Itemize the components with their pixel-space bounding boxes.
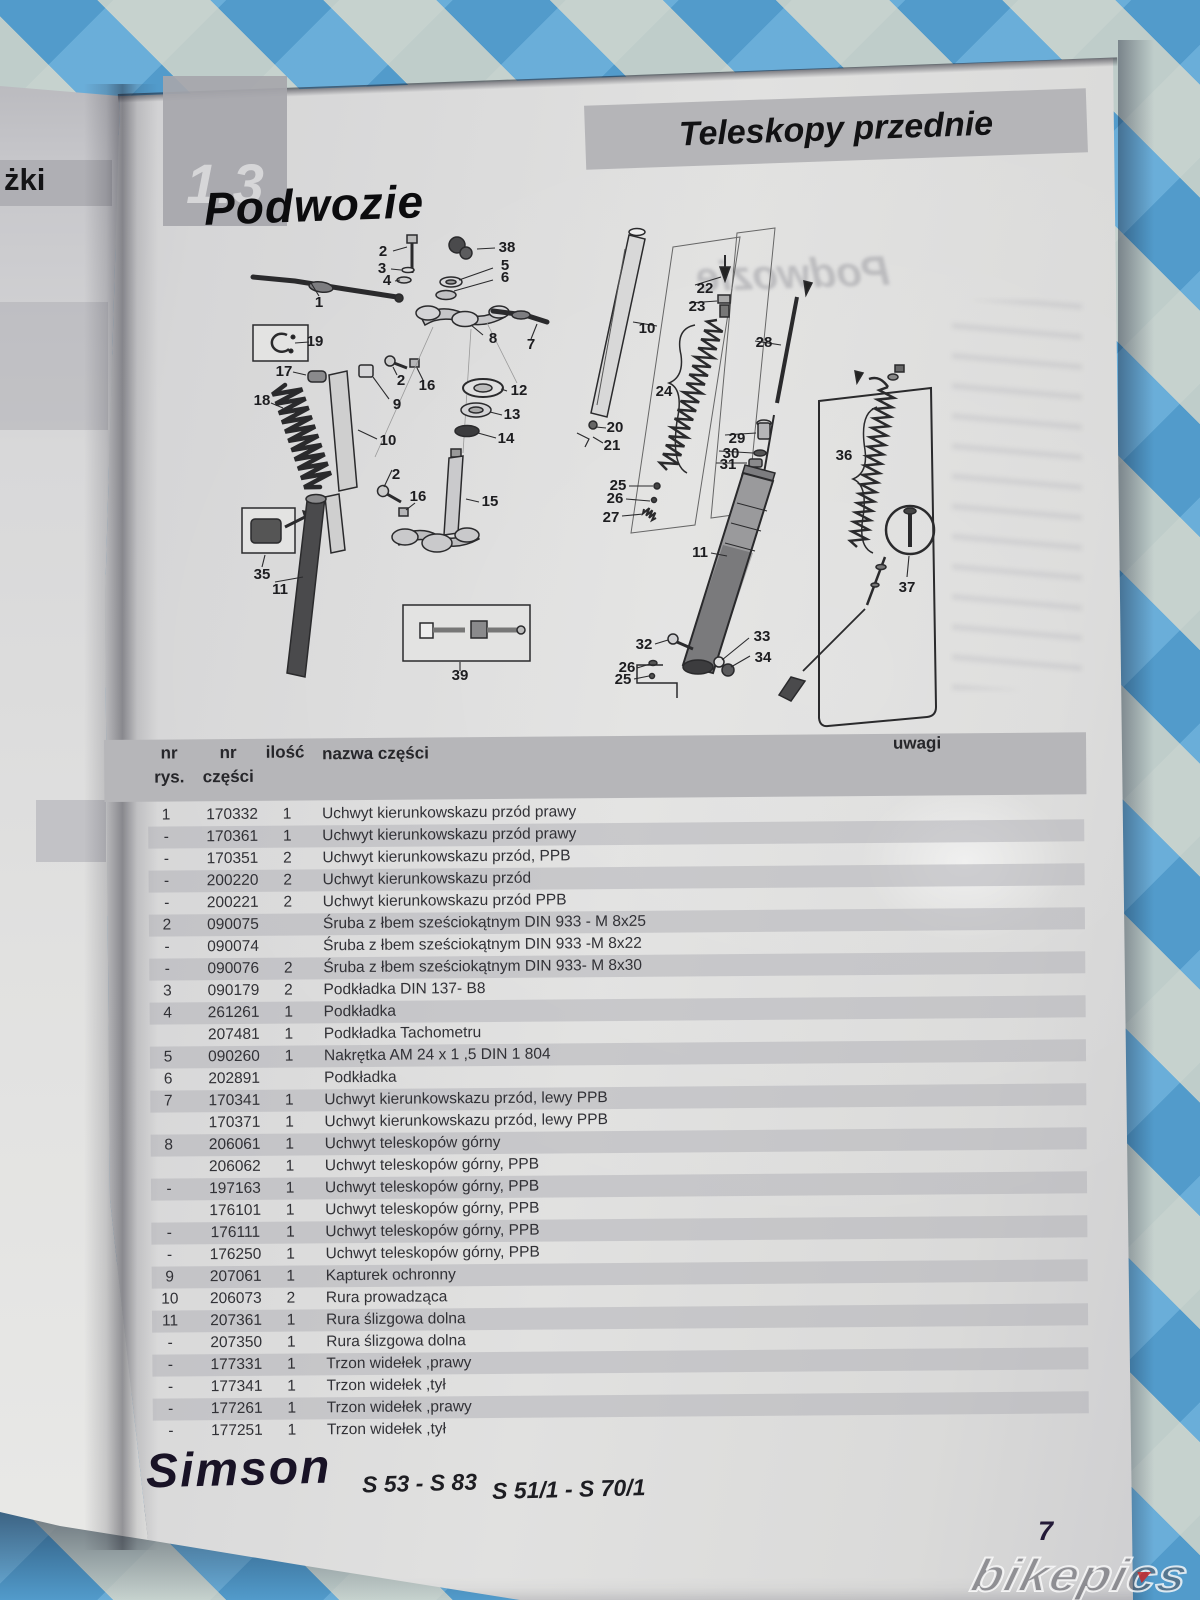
cell-ilosc: 1 (274, 1397, 310, 1419)
diagram-callout-12: 12 (511, 382, 528, 399)
cell-nr-rys: - (142, 1332, 198, 1354)
table-header: nr rys. nr części ilość nazwa części uwa… (104, 732, 1086, 802)
cell-nr-czesci: 177261 (201, 1398, 273, 1421)
cell-nr-czesci: 177341 (200, 1376, 272, 1399)
cell-nr-czesci: 200221 (197, 892, 269, 915)
cell-nazwa-czesci: Podkładka (324, 1001, 397, 1024)
cell-nazwa-czesci: Uchwyt teleskopów górny, PPB (325, 1242, 539, 1266)
cell-nr-rys: - (141, 1178, 197, 1200)
cell-nr-czesci: 090260 (198, 1046, 270, 1069)
cell-nr-czesci: 200220 (197, 870, 269, 893)
col-header-uwagi: uwagi (872, 733, 962, 754)
cell-ilosc: 2 (269, 847, 305, 869)
cell-nazwa-czesci: Uchwyt teleskopów górny, PPB (325, 1176, 539, 1200)
diagram-callout-10: 10 (639, 320, 656, 337)
cell-nr-rys: - (138, 848, 194, 870)
cell-nr-rys: 9 (142, 1266, 198, 1288)
cell-nazwa-czesci: Uchwyt kierunkowskazu przód PPB (323, 889, 567, 913)
diagram-callout-1: 1 (315, 294, 323, 311)
diagram-callout-35: 35 (254, 566, 271, 583)
cell-ilosc: 2 (270, 957, 306, 979)
cell-ilosc: 1 (274, 1419, 310, 1441)
cell-nazwa-czesci: Śruba z łbem sześciokątnym DIN 933 - M 8… (323, 911, 646, 936)
cell-nr-czesci: 177251 (201, 1420, 273, 1443)
diagram-callout-7: 7 (527, 336, 535, 353)
diagram-callout-34: 34 (755, 649, 772, 666)
cell-nazwa-czesci: Rura prowadząca (326, 1286, 448, 1309)
cell-nr-rys: - (138, 826, 194, 848)
cell-nr-rys: 10 (142, 1288, 198, 1310)
cell-nazwa-czesci: Śruba z łbem sześciokątnym DIN 933 -M 8x… (323, 933, 642, 958)
diagram-callout-23: 23 (689, 298, 706, 315)
cell-nr-rys: - (142, 1376, 198, 1398)
diagram-callout-28: 28 (756, 334, 773, 351)
cell-nr-czesci: 170351 (196, 848, 268, 871)
cell-ilosc: 2 (270, 979, 306, 1001)
diagram-callout-2: 2 (392, 466, 400, 483)
cell-nr-czesci: 197163 (199, 1178, 271, 1201)
cell-ilosc: 2 (273, 1287, 309, 1309)
diagram-callout-13: 13 (504, 406, 521, 423)
cell-nr-rys: 2 (139, 914, 195, 936)
cell-nr-czesci: 207061 (200, 1266, 272, 1289)
diagram-callout-22: 22 (697, 280, 714, 297)
chapter-banner-label: Teleskopy przednie (678, 104, 993, 154)
col-header-nr-czesci-line2: części (197, 767, 259, 787)
cell-nazwa-czesci: Podkładka Tachometru (324, 1022, 482, 1045)
cell-ilosc: 1 (271, 1111, 307, 1133)
cell-ilosc: 1 (269, 803, 305, 825)
diagram-callout-9: 9 (393, 396, 401, 413)
cell-nazwa-czesci: Uchwyt teleskopów górny, PPB (325, 1198, 539, 1222)
cell-ilosc: 1 (273, 1265, 309, 1287)
cell-ilosc: 1 (271, 1045, 307, 1067)
bikepics-watermark: bikepics (966, 1548, 1195, 1600)
cell-nr-rys: 4 (140, 1002, 196, 1024)
model-range-right: S 51/1 - S 70/1 (492, 1474, 646, 1505)
chapter-banner: Teleskopy przednie (584, 88, 1088, 169)
col-header-nr-rys-line2: rys. (143, 767, 195, 787)
cell-nr-rys: - (142, 1354, 198, 1376)
diagram-callout-31: 31 (720, 456, 737, 473)
diagram-callout-39: 39 (452, 667, 469, 684)
cell-ilosc: 1 (272, 1221, 308, 1243)
cell-nazwa-czesci: Podkładka DIN 137- B8 (323, 978, 485, 1001)
cell-nazwa-czesci: Uchwyt teleskopów górny, PPB (325, 1154, 539, 1178)
cell-nazwa-czesci: Trzon widełek ,prawy (326, 1352, 471, 1375)
cell-nr-czesci: 090076 (197, 958, 269, 981)
cell-nr-czesci: 176250 (199, 1244, 271, 1267)
diagram-callout-27: 27 (603, 509, 620, 526)
diagram-callout-24: 24 (656, 383, 673, 400)
col-header-nazwa-czesci: nazwa części (322, 743, 429, 764)
cell-nr-czesci: 206061 (199, 1134, 271, 1157)
cell-ilosc: 1 (272, 1177, 308, 1199)
cell-nazwa-czesci: Trzon widełek ,tył (326, 1374, 445, 1397)
cell-nazwa-czesci: Kapturek ochronny (326, 1264, 456, 1287)
diagram-callout-36: 36 (836, 447, 853, 464)
cell-nr-czesci: 202891 (198, 1068, 270, 1091)
cell-nr-rys: 7 (140, 1090, 196, 1112)
cell-nazwa-czesci: Nakrętka AM 24 x 1 ,5 DIN 1 804 (324, 1044, 551, 1068)
cell-nr-czesci: 170361 (196, 826, 268, 849)
diagram-callout-33: 33 (754, 628, 771, 645)
cell-nr-rys: 5 (140, 1046, 196, 1068)
diagram-callout-4: 4 (383, 272, 392, 289)
cell-nazwa-czesci: Uchwyt kierunkowskazu przód, lewy PPB (324, 1109, 608, 1133)
cell-ilosc: 1 (271, 1089, 307, 1111)
cell-nr-rys: - (139, 892, 195, 914)
cell-nr-czesci: 170371 (198, 1112, 270, 1135)
cell-nr-rys: - (141, 1244, 197, 1266)
diagram-callout-21: 21 (604, 437, 621, 454)
cell-nazwa-czesci: Uchwyt kierunkowskazu przód (323, 868, 532, 892)
cell-nr-rys: 3 (139, 980, 195, 1002)
diagram-callout-18: 18 (254, 392, 271, 409)
cell-ilosc: 1 (272, 1155, 308, 1177)
parts-table-rows: 11703321Uchwyt kierunkowskazu przód praw… (104, 797, 1091, 1443)
cell-nr-czesci: 207481 (198, 1024, 270, 1047)
diagram-callout-17: 17 (276, 363, 293, 380)
cell-nazwa-czesci: Uchwyt teleskopów górny (325, 1132, 501, 1155)
diagram-callout-25: 25 (615, 671, 632, 688)
brand-logo-text: Simson (145, 1440, 332, 1500)
cell-nazwa-czesci: Uchwyt kierunkowskazu przód, lewy PPB (324, 1087, 608, 1111)
diagram-callout-26: 26 (607, 490, 624, 507)
cell-nr-rys: 11 (142, 1310, 198, 1332)
cell-ilosc: 1 (269, 825, 305, 847)
cell-nr-czesci: 090075 (197, 914, 269, 937)
cell-nazwa-czesci: Trzon widełek ,prawy (327, 1396, 472, 1419)
cell-nazwa-czesci: Uchwyt kierunkowskazu przód, PPB (322, 845, 570, 869)
diagram-callout-11: 11 (272, 581, 288, 598)
diagram-callout-20: 20 (607, 419, 624, 436)
cell-nazwa-czesci: Uchwyt kierunkowskazu przód prawy (322, 823, 576, 847)
cell-nr-czesci: 170341 (198, 1090, 270, 1113)
diagram-callout-16: 16 (410, 488, 427, 505)
cell-nr-czesci: 261261 (198, 1002, 270, 1025)
cell-ilosc: 1 (271, 1023, 307, 1045)
cell-ilosc: 1 (273, 1331, 309, 1353)
cell-nr-rys: - (141, 1222, 197, 1244)
cell-nr-czesci: 170332 (196, 804, 268, 827)
diagram-callout-16: 16 (419, 377, 436, 394)
diagram-callout-15: 15 (482, 493, 499, 510)
cell-ilosc: 2 (270, 869, 306, 891)
cell-nr-czesci: 207361 (200, 1310, 272, 1333)
exploded-fork-diagram: 1234385687191718216912131410216153511391… (225, 225, 965, 730)
col-header-nr-rys-line1: nr (143, 743, 195, 763)
diagram-callout-10: 10 (380, 432, 397, 449)
watermark-red-accent (1135, 1572, 1152, 1583)
cell-nr-rys: - (143, 1420, 199, 1442)
diagram-callout-14: 14 (498, 430, 515, 447)
photo-of-parts-catalog-page: żki 1.3 Teleskopy przednie Podwozie Podw… (0, 0, 1200, 1600)
cell-nazwa-czesci: Rura ślizgowa dolna (326, 1308, 466, 1331)
diagram-callout-32: 32 (636, 636, 653, 653)
cell-nr-czesci: 177331 (200, 1354, 272, 1377)
cell-ilosc: 2 (270, 891, 306, 913)
cell-nr-rys: - (139, 936, 195, 958)
cell-nr-czesci: 090074 (197, 936, 269, 959)
cell-nr-rys: - (139, 870, 195, 892)
model-range-left: S 53 - S 83 (362, 1468, 478, 1498)
diagram-callout-38: 38 (499, 239, 516, 256)
cell-nr-czesci: 207350 (200, 1332, 272, 1355)
cell-nazwa-czesci: Trzon widełek ,tył (327, 1418, 446, 1441)
col-header-ilosc: ilość (250, 742, 320, 763)
diagram-callout-11: 11 (692, 544, 708, 561)
cell-nr-czesci: 206073 (200, 1288, 272, 1311)
cell-nazwa-czesci: Podkładka (324, 1067, 397, 1090)
cell-ilosc: 1 (272, 1133, 308, 1155)
cell-nr-rys: 8 (141, 1134, 197, 1156)
showthrough-diagram-blob (952, 300, 1082, 690)
cell-ilosc: 1 (272, 1199, 308, 1221)
cell-ilosc: 1 (271, 1001, 307, 1023)
cell-ilosc: 1 (273, 1309, 309, 1331)
page-content: 1.3 Teleskopy przednie Podwozie Podwozie (0, 0, 1200, 1600)
cell-nazwa-czesci: Śruba z łbem sześciokątnym DIN 933- M 8x… (323, 955, 642, 980)
diagram-callout-2: 2 (397, 372, 405, 389)
diagram-callout-2: 2 (379, 243, 387, 260)
cell-nazwa-czesci: Uchwyt teleskopów górny, PPB (325, 1220, 539, 1244)
cell-nr-czesci: 176111 (199, 1222, 271, 1245)
cell-nr-rys: - (139, 958, 195, 980)
cell-nazwa-czesci: Uchwyt kierunkowskazu przód prawy (322, 801, 576, 825)
diagram-callout-8: 8 (489, 330, 497, 347)
cell-nr-rys: 6 (140, 1068, 196, 1090)
cell-ilosc: 1 (273, 1353, 309, 1375)
cell-ilosc: 1 (272, 1243, 308, 1265)
page-number: 7 (1038, 1516, 1053, 1547)
cell-nr-czesci: 206062 (199, 1156, 271, 1179)
diagram-callout-37: 37 (899, 579, 916, 596)
cell-nazwa-czesci: Rura ślizgowa dolna (326, 1330, 466, 1353)
diagram-callout-6: 6 (501, 269, 509, 286)
cell-ilosc: 1 (273, 1375, 309, 1397)
cell-nr-rys: 1 (138, 804, 194, 826)
diagram-callout-19: 19 (307, 333, 324, 350)
cell-nr-czesci: 176101 (199, 1200, 271, 1223)
cell-nr-rys: - (143, 1398, 199, 1420)
cell-nr-czesci: 090179 (197, 980, 269, 1003)
